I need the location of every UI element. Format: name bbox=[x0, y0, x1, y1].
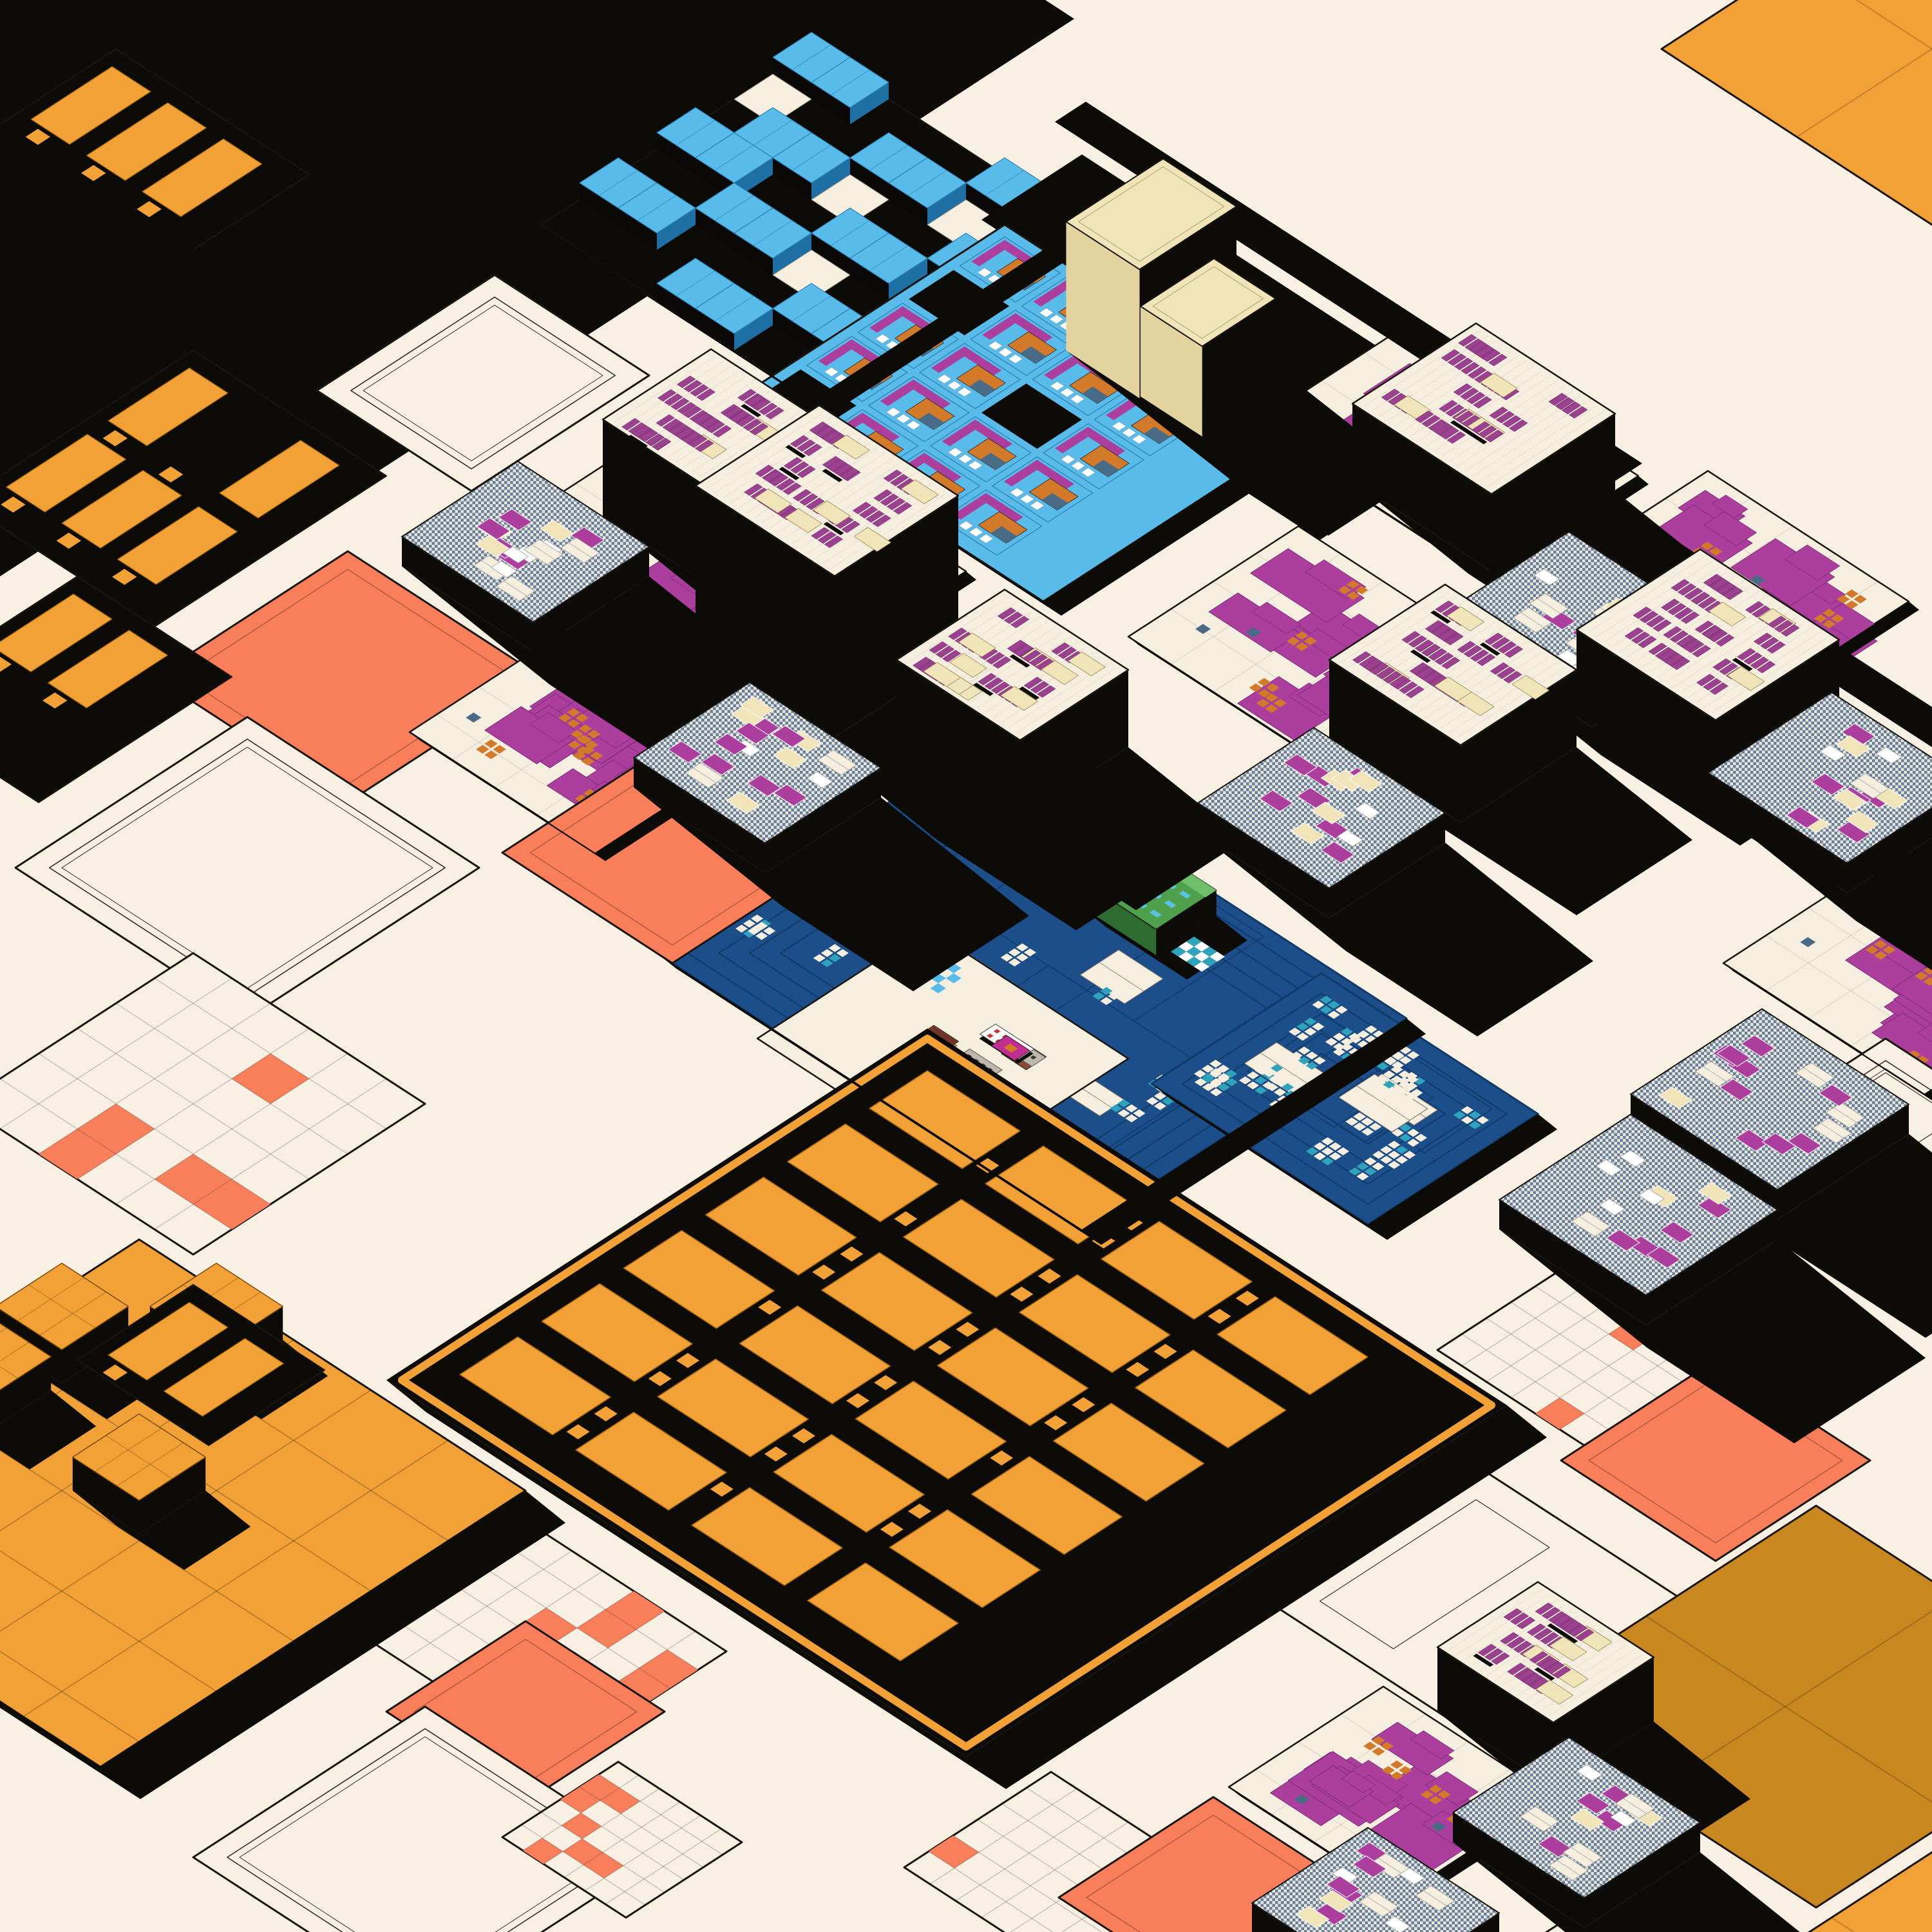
generative-iso-chip-city bbox=[0, 0, 1932, 1932]
city-canvas bbox=[0, 0, 1932, 1932]
